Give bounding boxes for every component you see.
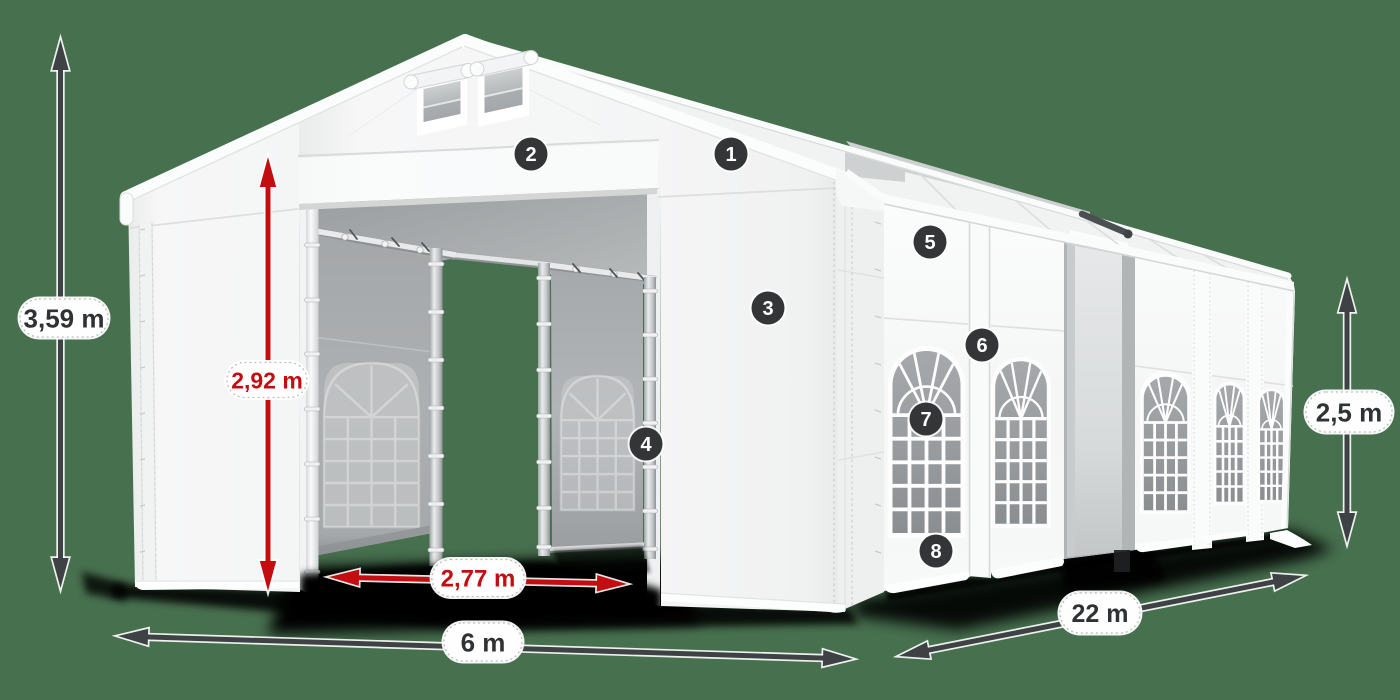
svg-text:7: 7	[920, 409, 931, 431]
svg-text:5: 5	[924, 232, 935, 254]
svg-text:6 m: 6 m	[461, 627, 506, 657]
svg-text:2,77 m: 2,77 m	[441, 566, 516, 593]
svg-text:3: 3	[762, 298, 773, 320]
svg-text:1: 1	[725, 144, 736, 166]
svg-text:2: 2	[525, 144, 536, 166]
svg-text:2,5 m: 2,5 m	[1316, 397, 1383, 427]
svg-text:3,59 m: 3,59 m	[24, 303, 105, 333]
svg-text:8: 8	[930, 541, 941, 563]
svg-text:6: 6	[976, 335, 987, 357]
svg-text:4: 4	[640, 434, 652, 456]
svg-text:22 m: 22 m	[1072, 600, 1129, 628]
svg-text:2,92 m: 2,92 m	[231, 367, 303, 393]
